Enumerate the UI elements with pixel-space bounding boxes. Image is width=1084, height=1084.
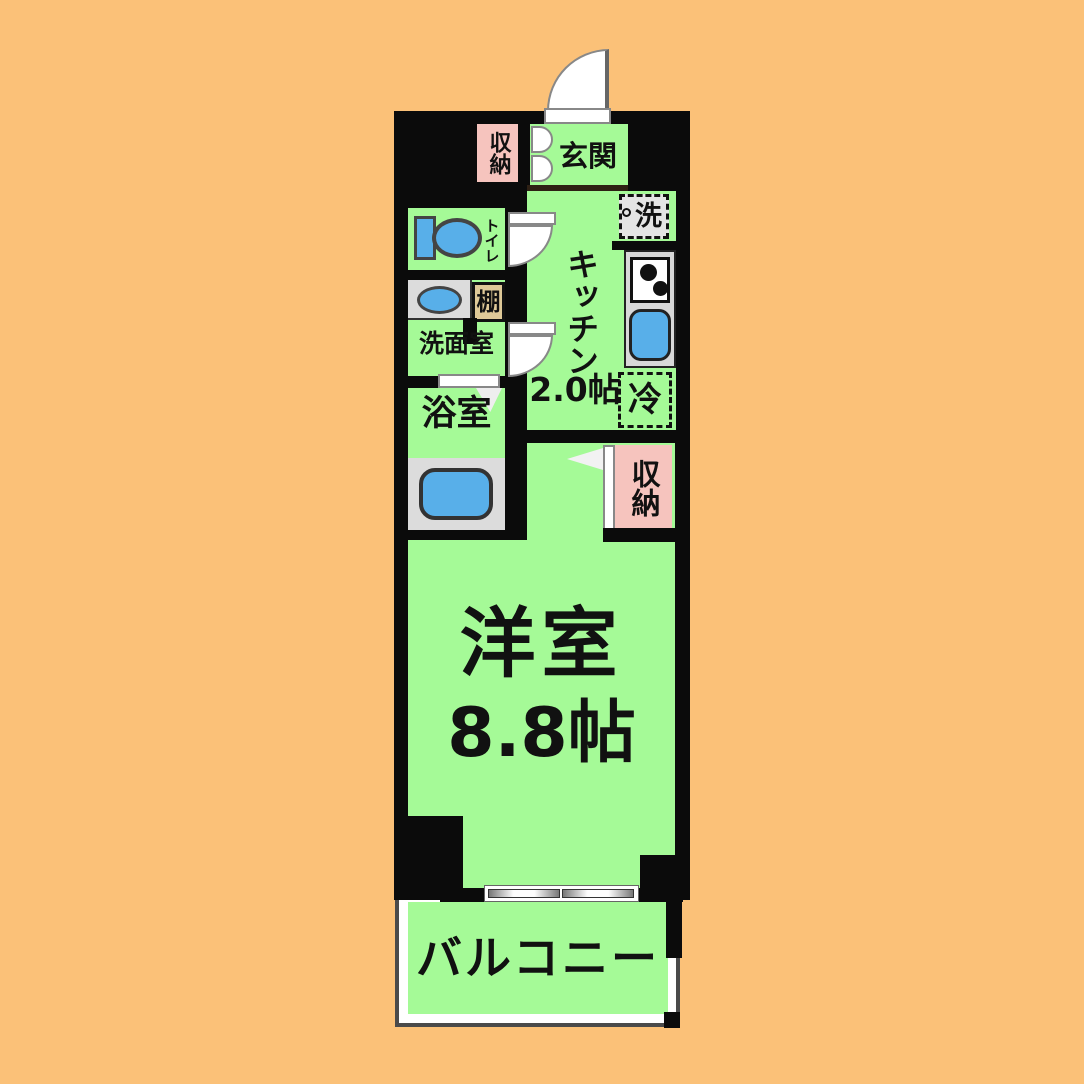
kitchen-label: キッチン xyxy=(558,248,604,376)
toilet-door-leaf xyxy=(508,212,556,225)
balcony-label: バルコニー xyxy=(408,902,668,1014)
faucet-icon xyxy=(622,208,631,217)
storage-wall xyxy=(603,528,690,542)
balcony-corner-post xyxy=(664,1012,680,1028)
stove-burner-icon xyxy=(653,281,668,296)
sliding-window-pane xyxy=(562,889,634,898)
washroom-label: 洗面室 xyxy=(408,328,505,358)
toilet-bowl xyxy=(432,218,482,258)
pillar xyxy=(640,855,683,902)
bathroom-door-sill xyxy=(438,374,500,388)
bathtub xyxy=(419,468,493,520)
toilet-label: トイレ xyxy=(480,210,502,270)
main-room-size-label: 8.8帖 xyxy=(408,692,675,776)
entrance-hall-label: 玄関 xyxy=(548,140,628,172)
main-room-label: 洋室 xyxy=(408,598,675,690)
washroom-door-leaf xyxy=(508,322,556,335)
refrigerator-label: 冷 xyxy=(618,374,672,426)
entrance-door-sill xyxy=(544,108,611,124)
wash-basin-bowl xyxy=(417,286,462,314)
shelf-label: 棚 xyxy=(472,284,505,320)
kitchen-sink xyxy=(629,309,671,361)
entrance-door-swing xyxy=(547,49,609,111)
main-storage-label: 収納 xyxy=(615,447,672,528)
balcony-right-wall xyxy=(666,900,682,958)
stove-burner-icon xyxy=(640,264,657,281)
counter-wall xyxy=(612,241,683,250)
main-storage-door xyxy=(603,445,615,530)
sliding-window-pane xyxy=(488,889,560,898)
bathroom-label: 浴室 xyxy=(408,392,505,436)
pillar xyxy=(394,816,463,888)
entrance-storage-label: 収納 xyxy=(477,126,518,180)
washing-machine-label: 洗 xyxy=(628,196,669,237)
kitchen-size-label: 2.0帖 xyxy=(522,370,628,408)
